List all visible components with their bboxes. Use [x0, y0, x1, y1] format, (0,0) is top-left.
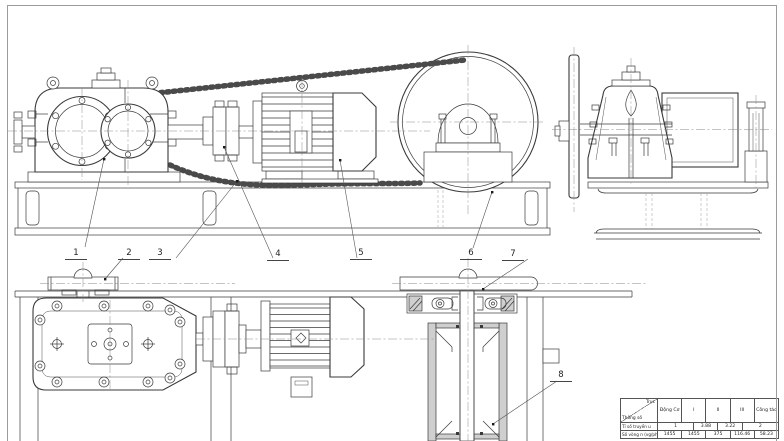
callout-6-number: 6 — [468, 248, 473, 258]
terminal-box-plan — [291, 377, 312, 397]
assembly-drawing — [0, 0, 784, 441]
speed-value-2: 1455 — [682, 431, 706, 439]
motor-end — [662, 93, 738, 167]
callout-3: 3 — [149, 248, 171, 260]
callout-5: 5 — [350, 248, 372, 260]
wheel-disc-side — [555, 55, 579, 198]
ratio-value-1: 1 — [658, 423, 694, 431]
col-header-shaft-1: I — [682, 399, 706, 423]
gearbox-plan — [33, 291, 196, 390]
callout-7: 7 — [502, 249, 524, 261]
callout-7-number: 7 — [510, 249, 515, 259]
gearbox-side — [580, 66, 673, 178]
ratio-value-2: 3.88 — [694, 423, 718, 431]
callout-1: 1 — [65, 248, 87, 260]
speed-value-4: 116.46 — [730, 431, 754, 439]
callout-1-number: 1 — [73, 248, 78, 258]
spec-table-corner: Trục Thông số — [621, 399, 658, 423]
speed-value-3: 375 — [706, 431, 730, 439]
callout-8: 8 — [550, 370, 572, 382]
front-view — [14, 52, 550, 235]
ratio-value-3: 3.22 — [718, 423, 742, 431]
callout-5-number: 5 — [358, 248, 363, 258]
end-view — [555, 55, 768, 239]
col-header-cong-tac: Công tác — [754, 399, 778, 423]
callout-8-number: 8 — [558, 370, 563, 380]
frame-end — [588, 182, 768, 239]
callout-4-number: 4 — [275, 249, 280, 259]
callout-4: 4 — [267, 249, 289, 261]
speed-value-1: 1455 — [658, 431, 682, 439]
callout-3-number: 3 — [157, 248, 162, 258]
row-label-speed: Số vòng n (vg/ph) — [621, 431, 658, 439]
callout-2: 2 — [118, 248, 140, 260]
col-header-shaft-3: III — [730, 399, 754, 423]
plan-view — [15, 269, 632, 441]
corner-label-truc: Trục — [646, 400, 655, 405]
gearbox-front — [14, 68, 203, 182]
spec-table: Trục Thông số Động Cơ I II III Công tác … — [620, 398, 779, 439]
col-header-dong-co: Động Cơ — [658, 399, 682, 423]
callout-2-number: 2 — [126, 248, 131, 258]
drawing-sheet: 1 2 3 4 5 6 7 8 Trục Thông số Động Cơ I … — [0, 0, 784, 441]
speed-value-5: 58.23 — [754, 431, 778, 439]
breather-cap-front — [92, 68, 120, 88]
col-header-shaft-2: II — [706, 399, 730, 423]
corner-label-thong-so: Thông số — [622, 416, 642, 421]
electric-motor-plan — [261, 297, 364, 397]
row-label-ratio: Tỉ số truyền u — [621, 423, 658, 431]
electric-motor-front — [253, 81, 378, 184]
callout-6: 6 — [460, 248, 482, 260]
ratio-value-4: 2 — [742, 423, 778, 431]
